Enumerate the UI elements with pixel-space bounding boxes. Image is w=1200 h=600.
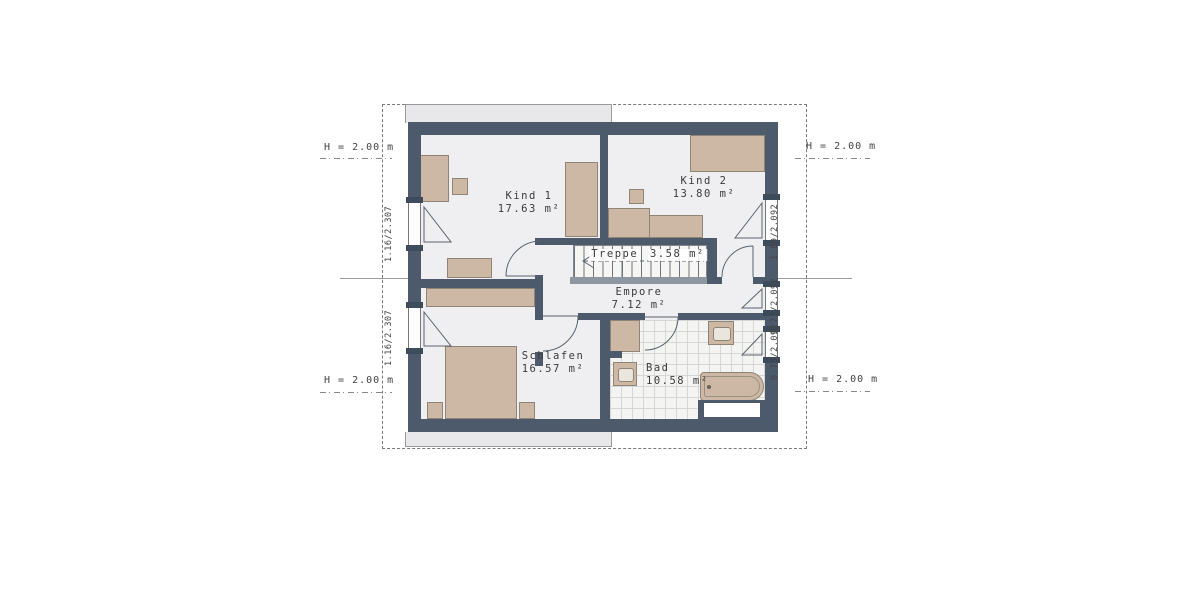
wall-kind1-kind2 xyxy=(600,135,608,245)
room-name: Empore xyxy=(612,286,667,299)
height-marker-line xyxy=(795,391,870,392)
height-marker-line xyxy=(320,158,392,159)
wardrobe-schlafen xyxy=(426,288,535,307)
sink-left xyxy=(613,362,637,386)
window-jamb xyxy=(406,197,423,203)
side-table-kind2 xyxy=(629,189,644,204)
window-left-upper xyxy=(408,203,421,245)
bathtub xyxy=(700,372,764,401)
height-marker-top-right: H = 2.00 m xyxy=(806,141,876,152)
sink-top xyxy=(708,321,734,345)
window-left-lower xyxy=(408,308,421,348)
room-name: Kind 2 xyxy=(673,175,736,188)
wall-bad-north xyxy=(678,313,765,320)
bed-kind2 xyxy=(690,135,765,172)
window-jamb xyxy=(406,302,423,308)
nightstand-left xyxy=(427,402,443,419)
nightstand-right xyxy=(519,402,535,419)
window-jamb xyxy=(406,348,423,354)
height-marker-line xyxy=(795,158,870,159)
wall-bad-west-stub xyxy=(610,351,622,358)
wall-empore-south xyxy=(578,313,645,320)
room-name: Schlafen xyxy=(522,350,585,363)
room-area: 17.63 m² xyxy=(498,203,561,216)
gallery-railing xyxy=(570,277,710,284)
lower-floor-band-top xyxy=(405,104,612,123)
height-marker-bottom-right: H = 2.00 m xyxy=(808,374,878,385)
room-label-kind1: Kind 1 17.63 m² xyxy=(498,190,561,215)
room-name: Bad xyxy=(646,362,709,375)
room-label-kind2: Kind 2 13.80 m² xyxy=(673,175,736,200)
dim-window-right-upper: 1.09/2.092 xyxy=(770,204,780,260)
height-marker-line xyxy=(320,392,392,393)
wall-bottom xyxy=(408,419,778,432)
wall-stair-north xyxy=(535,238,717,245)
wall-bad-west xyxy=(600,313,610,432)
room-area: 7.12 m² xyxy=(612,299,667,312)
desk-kind2-left xyxy=(608,208,650,238)
lower-floor-band-bottom xyxy=(405,432,612,447)
room-name: Kind 1 xyxy=(498,190,561,203)
bed-kind1 xyxy=(420,155,449,202)
wall-top xyxy=(408,122,778,135)
window-jamb xyxy=(406,245,423,251)
dresser-kind1 xyxy=(447,258,492,278)
room-area: 13.80 m² xyxy=(673,188,736,201)
cabinet-bad xyxy=(610,320,640,352)
room-label-schlafen: Schlafen 16.57 m² xyxy=(522,350,585,375)
dim-window-left-upper: 1.16/2.307 xyxy=(384,206,394,262)
wardrobe-kind1 xyxy=(565,162,598,237)
room-area: 3.58 m² xyxy=(648,249,707,261)
dim-window-left-lower: 1.16/2.307 xyxy=(384,310,394,366)
room-label-empore: Empore 7.12 m² xyxy=(612,286,667,311)
wall-kind2-south-a xyxy=(707,277,722,284)
height-marker-top-left: H = 2.00 m xyxy=(324,142,394,153)
window-jamb xyxy=(763,194,780,200)
room-label-treppe: Treppe 3.58 m² xyxy=(589,249,707,261)
floor-plan: Kind 1 17.63 m² Kind 2 13.80 m² Treppe 3… xyxy=(0,0,1200,600)
wall-schlafen-north xyxy=(408,279,543,288)
desk-kind2-right xyxy=(649,215,703,238)
dim-window-right-lower: 0.73/2.092 xyxy=(770,324,780,380)
room-area: 16.57 m² xyxy=(522,363,585,376)
room-name: Treppe xyxy=(589,249,640,261)
wall-left xyxy=(408,122,421,432)
side-table-kind1 xyxy=(452,178,468,195)
room-area: 10.58 m² xyxy=(646,375,709,388)
room-label-bad: Bad 10.58 m² xyxy=(646,362,709,387)
bed-schlafen xyxy=(445,346,517,419)
height-marker-bottom-left: H = 2.00 m xyxy=(324,375,394,386)
shower-tray xyxy=(704,403,760,417)
